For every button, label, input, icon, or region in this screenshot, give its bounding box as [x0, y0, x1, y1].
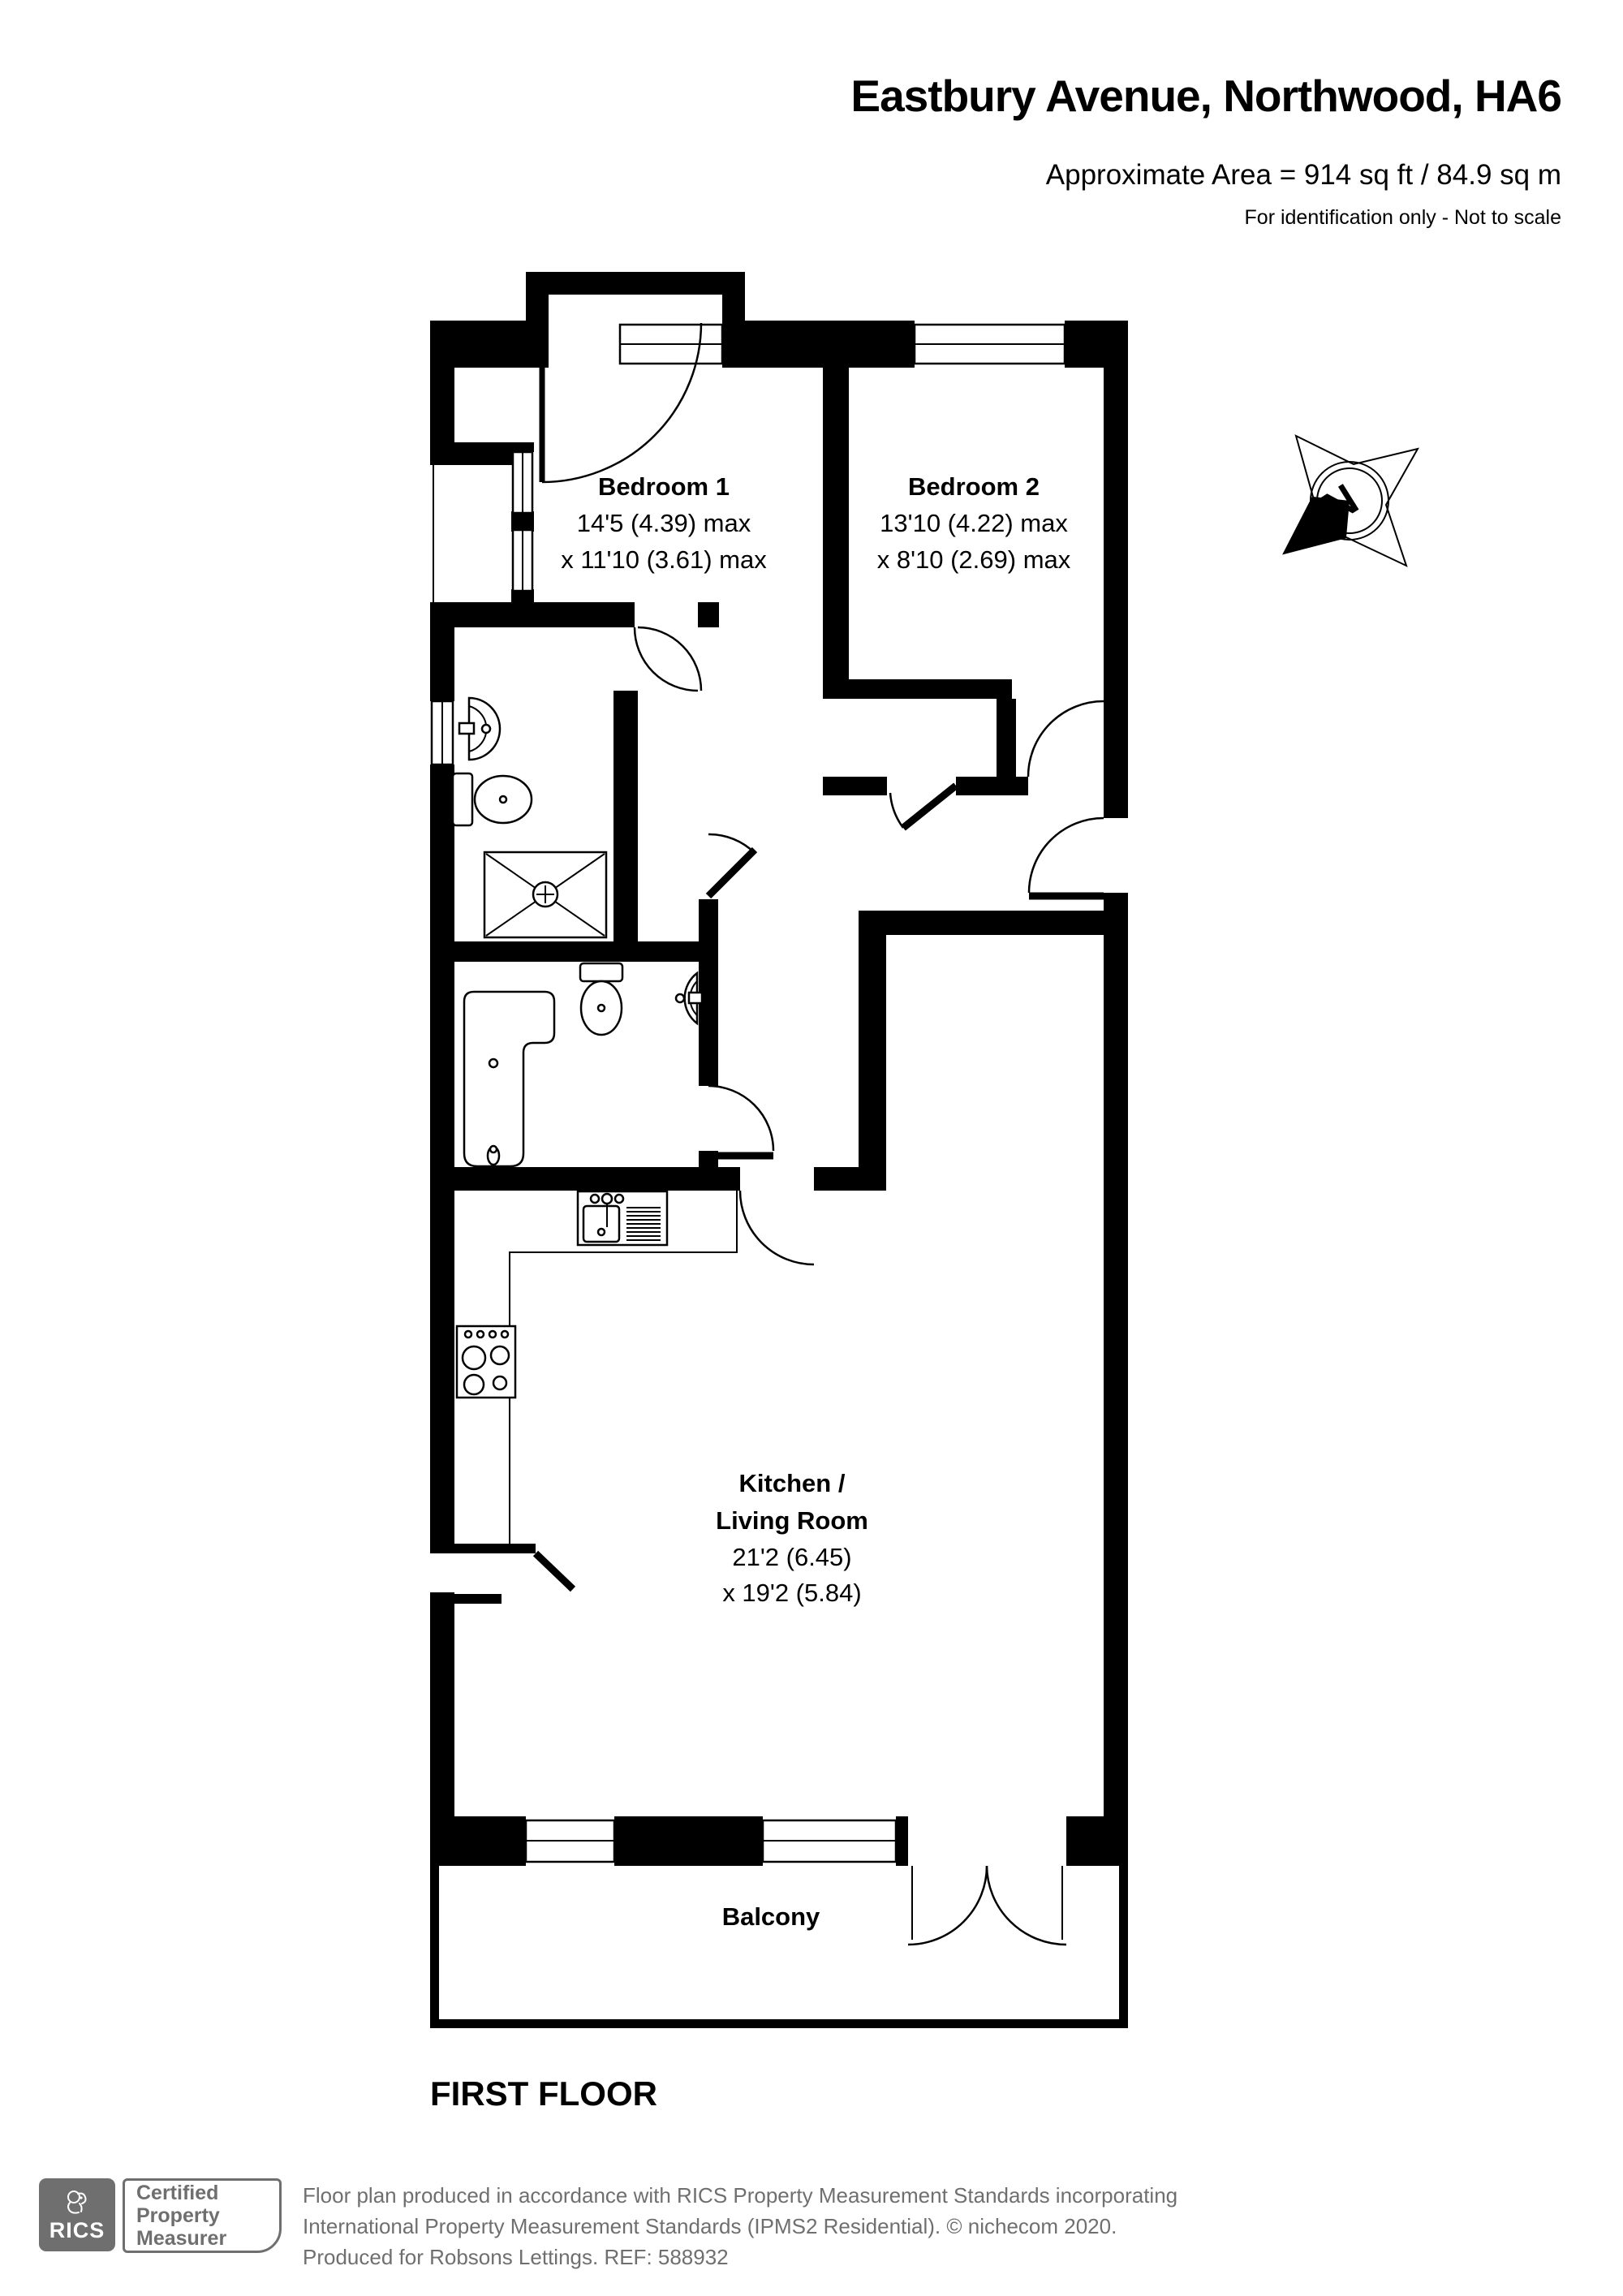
footer-line-3: Produced for Robsons Lettings. REF: 5889… — [303, 2242, 1177, 2272]
bedroom2-dim2: x 8'10 (2.69) max — [877, 545, 1071, 574]
badge-line-1: Certified — [136, 2182, 279, 2204]
hob-icon — [457, 1326, 515, 1398]
corridor-door-icon — [708, 834, 755, 896]
bedroom1-name: Bedroom 1 — [598, 472, 730, 501]
badge-line-3: Measurer — [136, 2227, 279, 2250]
room-labels: Bedroom 1 14'5 (4.39) max x 11'10 (3.61)… — [430, 472, 1071, 2113]
kitchen-name-line1: Kitchen / — [739, 1469, 846, 1497]
kitchen-name-line2: Living Room — [716, 1506, 868, 1535]
porch-window-icon — [620, 325, 722, 364]
kitchen-living-label: Kitchen / Living Room 21'2 (6.45) x 19'2… — [716, 1469, 868, 1607]
footer-line-1: Floor plan produced in accordance with R… — [303, 2180, 1177, 2211]
drainer-lines — [626, 1208, 661, 1240]
bedroom1-dim1: 14'5 (4.39) max — [577, 509, 751, 537]
rics-logo: RICS — [39, 2178, 115, 2251]
footer: RICS Certified Property Measurer Floor p… — [39, 2178, 1177, 2272]
shower-room-sink-icon — [459, 698, 500, 760]
bedroom1-hall-door-icon — [635, 627, 698, 691]
floorplan-page: Eastbury Avenue, Northwood, HA6 Approxim… — [0, 0, 1623, 2296]
bedroom2-door-icon — [890, 786, 956, 828]
bath-icon — [464, 992, 554, 1166]
kitchen-dim1: 21'2 (6.45) — [732, 1543, 851, 1571]
compass-rose: N — [1284, 436, 1418, 566]
footer-disclaimer: Floor plan produced in accordance with R… — [303, 2178, 1177, 2272]
shower-tray-icon — [484, 852, 606, 937]
bedroom2-label: Bedroom 2 13'10 (4.22) max x 8'10 (2.69)… — [877, 472, 1071, 574]
floor-level-label: FIRST FLOOR — [430, 2074, 657, 2113]
bathroom-door-icon — [708, 1086, 773, 1156]
rics-lion-icon — [62, 2187, 93, 2216]
bathroom-sink-icon — [676, 973, 702, 1023]
kitchen-door-icon — [740, 1191, 814, 1264]
shower-room-window-icon — [432, 701, 453, 765]
kitchen-dim2: x 19'2 (5.84) — [722, 1579, 861, 1607]
bedroom2-window-icon — [915, 325, 1065, 364]
floorplan-drawing: N Bedroom 1 14'5 (4.39) max x 11'10 (3.6… — [0, 0, 1623, 2296]
kitchen-sink-icon — [578, 1191, 667, 1245]
fixtures — [453, 698, 737, 1544]
bathroom-toilet-icon — [580, 963, 622, 1035]
badge-line-2: Property — [136, 2204, 279, 2227]
bedroom1-dim2: x 11'10 (3.61) max — [561, 545, 767, 574]
balcony-french-doors-icon — [908, 1866, 1066, 1945]
bedroom1-label: Bedroom 1 14'5 (4.39) max x 11'10 (3.61)… — [561, 472, 767, 574]
kitchen-recess-door-icon — [536, 1553, 573, 1589]
shower-room-toilet-icon — [453, 773, 532, 825]
balcony-label: Balcony — [722, 1902, 820, 1931]
shower-room-door-icon — [638, 627, 701, 691]
rics-logo-text: RICS — [50, 2218, 105, 2243]
bedroom2-dim1: 13'10 (4.22) max — [880, 509, 1068, 537]
certified-measurer-badge: Certified Property Measurer — [123, 2178, 282, 2253]
footer-line-2: International Property Measurement Stand… — [303, 2211, 1177, 2242]
bedroom2-name: Bedroom 2 — [908, 472, 1040, 501]
hall-vestibule-door-icon — [1028, 701, 1104, 777]
entrance-door-icon — [1029, 818, 1104, 896]
